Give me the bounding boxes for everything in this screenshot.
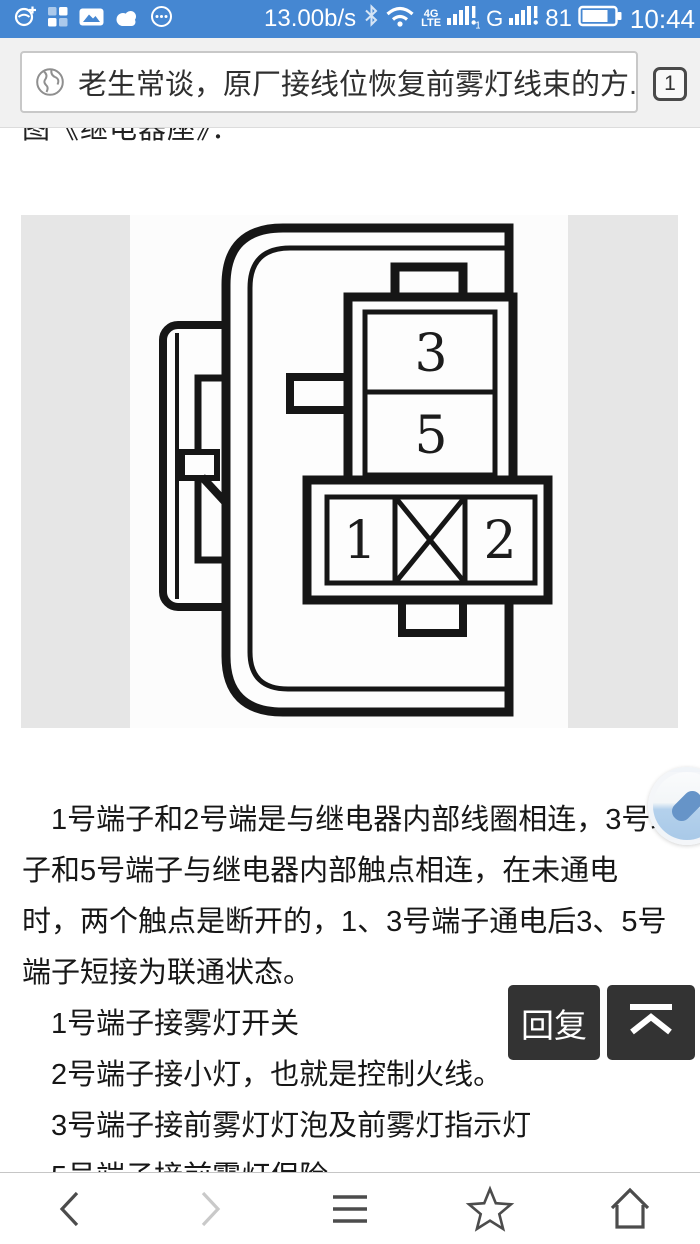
sync-icon [14, 5, 37, 33]
globe-icon [35, 67, 65, 97]
status-bar-left-icons [14, 5, 173, 33]
status-bar: 13.00b/s 4G LTE 1 G 81 10:44 [0, 0, 700, 38]
terminal-label-1: 1 [343, 511, 376, 571]
wifi-icon [385, 4, 415, 34]
carrier2-label: G [486, 6, 503, 32]
terminal-label-2: 2 [483, 511, 516, 571]
battery-icon [578, 4, 622, 35]
page-content: 图《继电器座》： [0, 128, 700, 1172]
tab-count: 1 [664, 72, 676, 96]
scroll-to-top-icon [622, 999, 680, 1046]
signal-bars-sim2-icon [509, 2, 539, 36]
scroll-to-top-button[interactable] [607, 985, 695, 1060]
browser-chrome: 老生常谈，原厂接线位恢复前雾灯线束的方... 1 [0, 38, 700, 128]
network-type-lte: LTE [421, 19, 441, 28]
network-speed: 13.00b/s [264, 5, 356, 33]
paragraph-line: 1号端子和2号端是与继电器内部线圈相连，3号端 [22, 795, 678, 846]
paragraph-line: 子和5号端子与继电器内部触点相连，在未通电 [22, 846, 678, 897]
svg-text:1: 1 [475, 21, 480, 30]
terminal-label-5: 5 [414, 406, 447, 466]
terminal-note-3: 3号端子接前雾灯灯泡及前雾灯指示灯 [22, 1101, 678, 1152]
reply-button[interactable]: 回复 [508, 985, 600, 1060]
signal-bars-sim1-icon: 1 [447, 2, 480, 36]
network-type-badge: 4G LTE [421, 10, 441, 28]
relay-socket-diagram[interactable]: 3 5 1 2 [130, 215, 568, 728]
paragraph-line: 时，两个触点是断开的，1、3号端子通电后3、5号 [22, 897, 678, 948]
photo-icon [79, 6, 104, 33]
post-image-panel: 3 5 1 2 [21, 215, 678, 728]
menu-button[interactable] [280, 1173, 420, 1244]
more-icon [150, 5, 173, 33]
phone-screen: 13.00b/s 4G LTE 1 G 81 10:44 [0, 0, 700, 1244]
terminal-note-5: 5号端子接前雾灯保险 [22, 1152, 678, 1172]
battery-percent: 81 [545, 5, 572, 33]
tab-counter-button[interactable]: 1 [653, 67, 687, 101]
grid-icon [47, 6, 69, 33]
status-bar-right: 13.00b/s 4G LTE 1 G 81 10:44 [264, 2, 695, 36]
cloud-icon [114, 6, 140, 33]
clipped-heading: 图《继电器座》： [22, 128, 672, 143]
bluetooth-icon [364, 4, 379, 34]
browser-nav-bar [0, 1172, 700, 1244]
bookmark-star-button[interactable] [420, 1173, 560, 1244]
page-title: 老生常谈，原厂接线位恢复前雾灯线束的方... [78, 61, 638, 103]
terminal-label-3: 3 [414, 324, 447, 384]
address-bar[interactable]: 老生常谈，原厂接线位恢复前雾灯线束的方... [20, 51, 638, 113]
reply-button-label: 回复 [521, 999, 587, 1047]
floating-assistant-icon [668, 787, 700, 824]
post-body-text: 1号端子和2号端是与继电器内部线圈相连，3号端 子和5号端子与继电器内部触点相连… [22, 795, 678, 1172]
forward-button[interactable] [140, 1173, 280, 1244]
clock: 10:44 [630, 4, 695, 35]
home-button[interactable] [560, 1173, 700, 1244]
back-button[interactable] [0, 1173, 140, 1244]
